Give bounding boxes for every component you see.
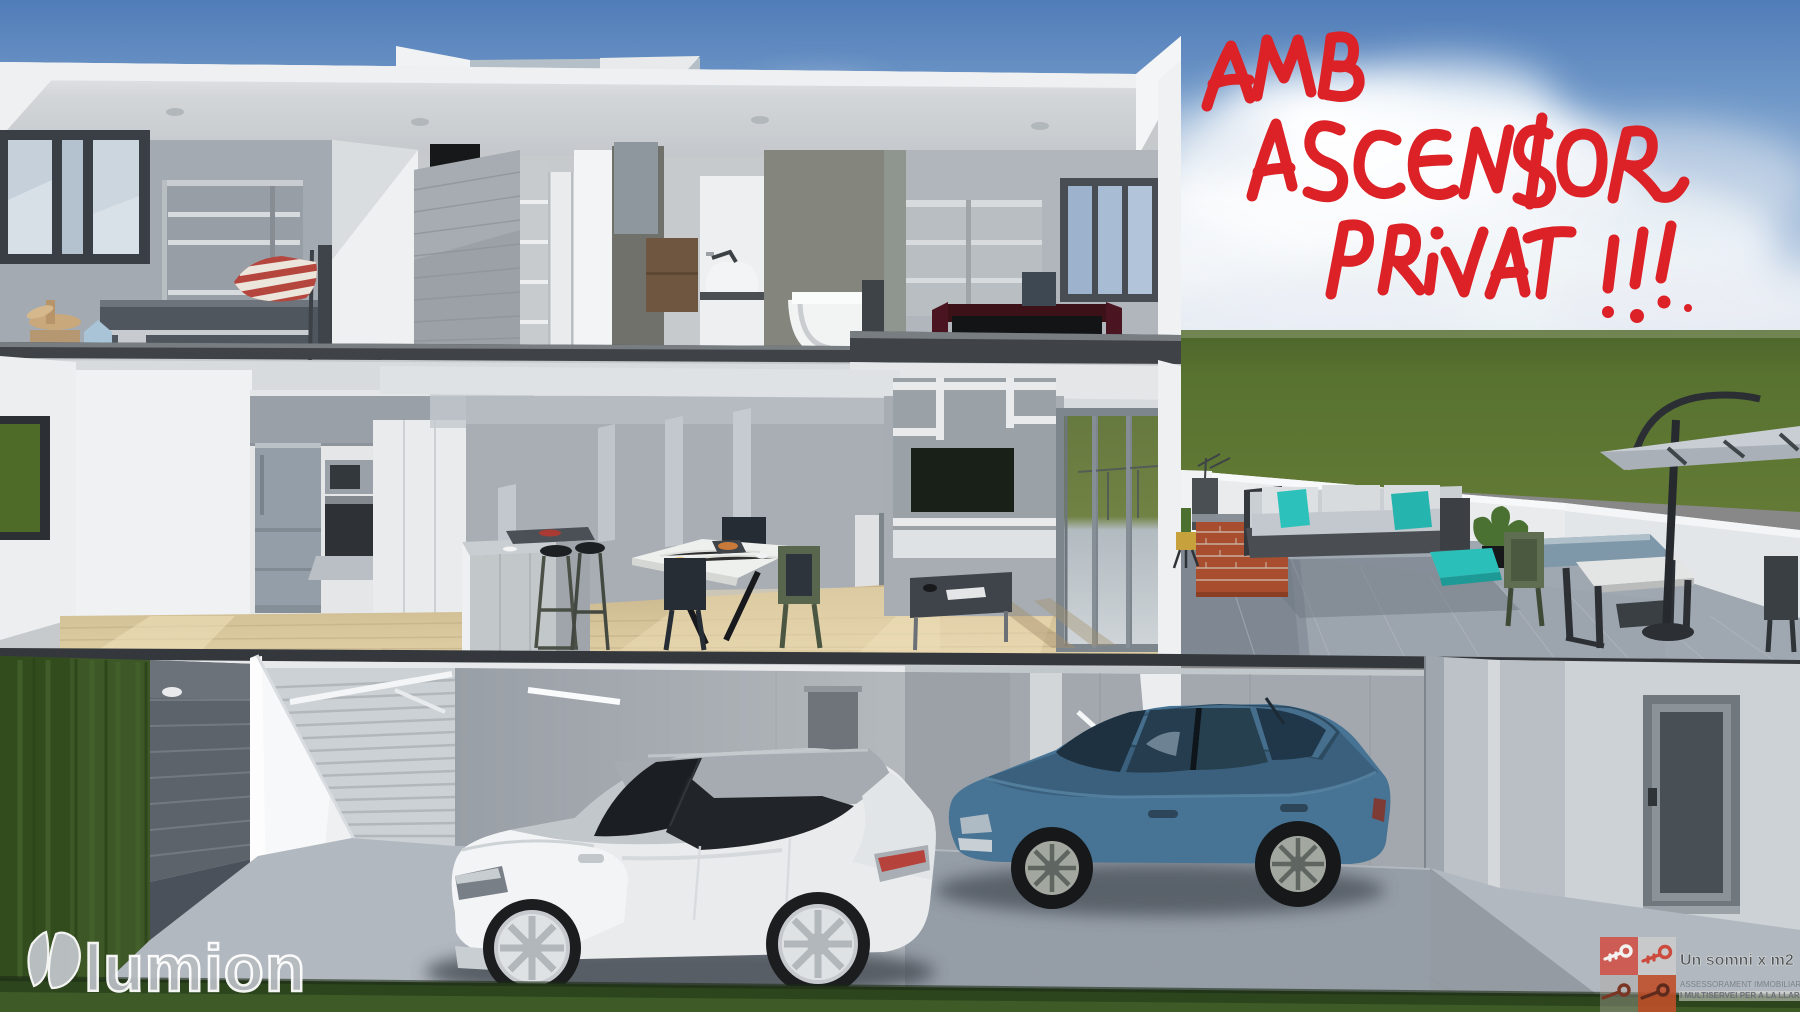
svg-text:ASSESSORAMENT IMMOBILIARI: ASSESSORAMENT IMMOBILIARI bbox=[1680, 980, 1800, 989]
svg-text:lumion: lumion bbox=[84, 931, 306, 1005]
svg-text:Un somni x m2: Un somni x m2 bbox=[1680, 952, 1794, 969]
svg-text:I MULTISERVEI PER A LA LLAR: I MULTISERVEI PER A LA LLAR bbox=[1680, 991, 1800, 1000]
